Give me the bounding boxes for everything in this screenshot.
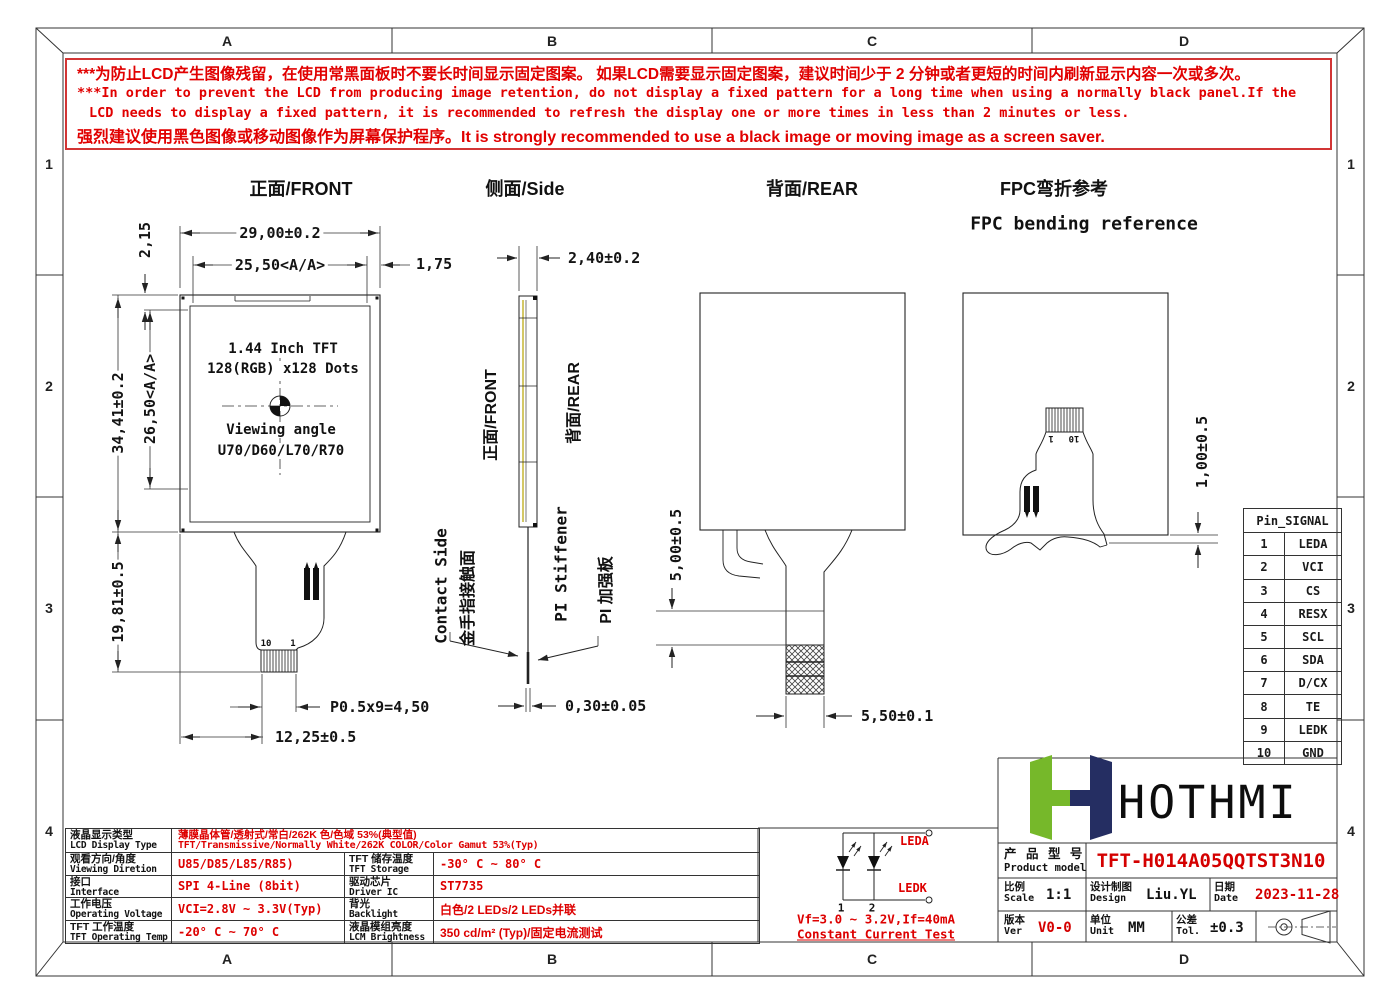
spec-value-interface: SPI 4-Line (8bit) [171,875,344,898]
design-label: 设计制图 Design [1090,881,1132,904]
led-anode-label: LEDA [900,834,929,848]
version-label-cn: 版本 [1004,914,1025,926]
spec-label-en: Operating Voltage [70,910,171,920]
table-row: 9LEDK [1244,718,1341,741]
bend-pin10-label: 10 [1069,433,1080,443]
pin-number: 10 [1244,742,1284,764]
spec-label-brightness: 液晶模组亮度 LCM Brightness [344,920,433,943]
pin-signal: SCL [1284,626,1341,648]
dim-rear-tail-width: 5,50±0.1 [858,707,936,725]
table-row: 3CS [1244,579,1341,602]
contact-side-label-en: Contact Side [432,528,451,644]
scale-label-cn: 比例 [1004,881,1034,893]
zone-bottom-a: A [222,951,232,967]
side-view-title: 侧面/Side [485,175,564,201]
zone-bottom-c: C [867,951,877,967]
dim-front-top-margin: 2,15 [136,220,154,260]
pin-number: 4 [1244,603,1284,625]
product-label-cn: 产 品 型 号 [1004,847,1086,862]
design-label-en: Design [1090,893,1132,904]
spec-label-viewing-direction: 观看方向/角度 Viewing Diretion [66,852,171,875]
brand-name: HOTHMI [1118,776,1299,829]
bend-view-title-en: FPC bending reference [970,214,1198,235]
zone-left-2: 2 [45,378,53,394]
spec-label-driver-ic: 驱动芯片 Driver IC [344,875,433,898]
version-value: V0-0 [1038,920,1072,936]
zone-top-c: C [867,33,877,49]
zone-left-4: 4 [45,823,53,839]
pin-signal: RESX [1284,603,1341,625]
bend-view-outline [963,293,1168,555]
zone-bottom-d: D [1179,951,1189,967]
table-row: 7D/CX [1244,671,1341,694]
spec-value-operating-temp: -20° C ~ 70° C [171,920,344,943]
bend-dimension-lines [1109,535,1218,543]
pin-signal: SDA [1284,649,1341,671]
version-label: 版本 Ver [1004,914,1025,937]
design-label-cn: 设计制图 [1090,881,1132,893]
spec-value-en: TFT/Transmissive/Normally White/262K COL… [178,841,759,851]
front-components [304,562,319,600]
side-label-front: 正面/FRONT [477,369,501,461]
spec-label-cn: 接口 [70,877,171,888]
led-vf-spec: Vf=3.0 ~ 3.2V,If=40mA [797,912,955,927]
side-corner-marks [533,296,537,527]
display-size-text: 1.44 Inch TFT [226,341,340,357]
pin-number: 1 [1244,533,1284,555]
spec-label-en: TFT Storage Temp [349,865,433,875]
spec-label-operating-voltage: 工作电压 Operating Voltage [66,897,171,920]
zone-top-d: D [1179,33,1189,49]
pin-number: 7 [1244,672,1284,694]
dim-front-aa-height: 26,50<A/A> [141,352,159,446]
dim-rear-stiffener: 5,00±0.5 [667,507,685,583]
zone-right-1: 1 [1347,156,1355,172]
front-pin10-label: 10 [261,639,272,649]
table-row: 4RESX [1244,602,1341,625]
spec-value-brightness: 350 cd/m² (Typ)/固定电流测试 [433,920,759,943]
rear-view-title: 背面/REAR [766,175,858,201]
bend-pin1-label: 1 [1048,433,1053,443]
dim-front-aa-width: 25,50<A/A> [232,256,328,274]
date-label-cn: 日期 [1214,881,1238,893]
spec-value-driver-ic: ST7735 [433,875,759,898]
tolerance-label: 公差 Tol. [1176,914,1200,937]
pin-signal: GND [1284,742,1341,764]
bend-view-title-cn: FPC弯折参考 [1000,175,1108,201]
center-mark-icon [270,396,290,416]
tolerance-label-en: Tol. [1176,926,1200,937]
table-row: 6SDA [1244,648,1341,671]
spec-label-en: Backlight [349,910,433,920]
pin-signal: D/CX [1284,672,1341,694]
viewing-angle-caption: Viewing angle [224,422,338,438]
zone-right-3: 3 [1347,600,1355,616]
unit-label-en: Unit [1090,926,1114,937]
dim-side-thickness: 2,40±0.2 [565,249,643,267]
rear-dimension-arrows [672,588,852,716]
zone-top-b: B [547,33,557,49]
spec-label-en: Driver IC [349,888,433,898]
product-label-en: Product model [1004,862,1086,874]
dim-front-width: 29,00±0.2 [236,224,323,242]
display-resolution-text: 128(RGB) x128 Dots [205,361,361,377]
spec-value-storage-temp: -30° C ~ 80° C [433,852,759,875]
projection-symbol-icon [1268,911,1336,943]
datasheet-drawing-page: A B C D A B C D 1 2 3 4 1 2 3 4 ***为防止LC… [0,0,1400,989]
zone-top-a: A [222,33,232,49]
date-label-en: Date [1214,893,1238,904]
contact-side-label-cn: 金手指接触面 [454,550,478,646]
spec-label-operating-temp: TFT 工作温度 TFT Operating Temp [66,920,171,943]
spec-label-backlight: 背光 Backlight [344,897,433,920]
dim-bend-protrusion: 1,00±0.5 [1193,414,1211,490]
pin-table-header: Pin_SIGNAL [1244,509,1341,532]
spec-label-display-type: 液晶显示类型 LCD Display Type [66,829,171,852]
spec-value-display-type: 薄膜晶体管/透射式/常白/262K 色/色域 53%(典型值) TFT/Tran… [171,829,759,852]
spec-label-storage-temp: TFT 储存温度 TFT Storage Temp [344,852,433,875]
zone-right-2: 2 [1347,378,1355,394]
table-row: 2VCI [1244,555,1341,578]
dim-front-height: 34,41±0.2 [109,370,127,455]
pin-number: 6 [1244,649,1284,671]
unit-value: MM [1128,920,1145,936]
spec-label-en: Interface [70,888,171,898]
scale-value: 1:1 [1046,887,1071,903]
version-label-en: Ver [1004,926,1025,937]
spec-label-interface: 接口 Interface [66,875,171,898]
designer-name: Liu.YL [1146,887,1197,903]
side-view-outline [519,296,537,684]
led-cathode-label: LEDK [898,881,927,895]
front-fpc-tail [234,532,346,672]
zone-right-4: 4 [1347,823,1355,839]
unit-label: 单位 Unit [1090,914,1114,937]
date-value: 2023-11-28 [1255,887,1339,903]
pin-number: 5 [1244,626,1284,648]
rear-view-outline [700,293,905,694]
table-row: 8TE [1244,694,1341,717]
scale-label-en: Scale [1004,893,1034,904]
dim-side-fpc-thickness: 0,30±0.05 [562,697,649,715]
bend-components [1024,486,1039,518]
spec-label-en: Viewing Diretion [70,865,171,875]
pin-signal: LEDK [1284,719,1341,741]
warning-line-cn: ***为防止LCD产生图像残留，在使用常黑面板时不要长时间显示固定图案。 如果L… [77,62,1250,84]
front-pin1-label: 1 [290,639,295,649]
front-dimension-arrows [118,233,400,737]
pin-number: 2 [1244,556,1284,578]
warning-line-screensaver: 强烈建议使用黑色图像或移动图像作为屏幕保护程序。It is strongly r… [77,123,1105,147]
zone-bottom-b: B [547,951,557,967]
spec-label-en: LCM Brightness [349,933,433,943]
warning-line-en-1: ***In order to prevent the LCD from prod… [77,85,1296,101]
led-test-note: Constant Current Test [797,927,955,942]
pin-signal: LEDA [1284,533,1341,555]
spec-label-en: TFT Operating Temp [70,933,171,943]
viewing-angle-values: U70/D60/L70/R70 [216,443,346,459]
spec-label-en: LCD Display Type [70,841,171,851]
table-row: 10GND [1244,741,1341,764]
unit-label-cn: 单位 [1090,914,1114,926]
pin-signal-table: Pin_SIGNAL 1LEDA 2VCI 3CS 4RESX 5SCL 6SD… [1243,508,1342,765]
dim-front-tail-length: 19,81±0.5 [109,559,127,644]
tolerance-value: ±0.3 [1210,920,1244,936]
spec-value-viewing-direction: U85/D85/L85/R85) [171,852,344,875]
tolerance-label-cn: 公差 [1176,914,1200,926]
product-model-value: TFT-H014A05QQTST3N10 [1097,850,1326,872]
warning-line-en-2: LCD needs to display a fixed pattern, it… [89,105,1129,121]
scale-label: 比例 Scale [1004,881,1034,904]
pin-number: 3 [1244,580,1284,602]
date-label: 日期 Date [1214,881,1238,904]
image-retention-warning: ***为防止LCD产生图像残留，在使用常黑面板时不要长时间显示固定图案。 如果L… [65,58,1332,150]
zone-left-3: 3 [45,600,53,616]
dim-front-right-margin: 1,75 [413,255,455,273]
pin-signal: CS [1284,580,1341,602]
spec-value-operating-voltage: VCI=2.8V ~ 3.3V(Typ) [171,897,344,920]
led-symbols [837,856,880,869]
pin-signal: VCI [1284,556,1341,578]
zone-left-1: 1 [45,156,53,172]
dim-front-pitch: P0.5x9=4,50 [327,698,432,716]
pin-number: 9 [1244,719,1284,741]
stiffener-label-cn: PI 加强板 [592,556,616,624]
stiffener-label-en: PI Stiffener [552,506,571,622]
front-view-title: 正面/FRONT [250,175,353,201]
pin-signal: TE [1284,695,1341,717]
pin-number: 8 [1244,695,1284,717]
dim-front-tail-width: 12,25±0.5 [272,728,359,746]
side-label-rear: 背面/REAR [560,362,584,444]
hothmi-logo-icon [1030,755,1112,840]
table-row: 5SCL [1244,625,1341,648]
table-row: 1LEDA [1244,532,1341,555]
spec-value-backlight: 白色/2 LEDs/2 LEDs并联 [433,897,759,920]
product-model-label: 产 品 型 号 Product model [1004,847,1086,874]
spec-label-cn: 驱动芯片 [349,877,433,888]
lcd-spec-table: 液晶显示类型 LCD Display Type 薄膜晶体管/透射式/常白/262… [65,828,760,944]
